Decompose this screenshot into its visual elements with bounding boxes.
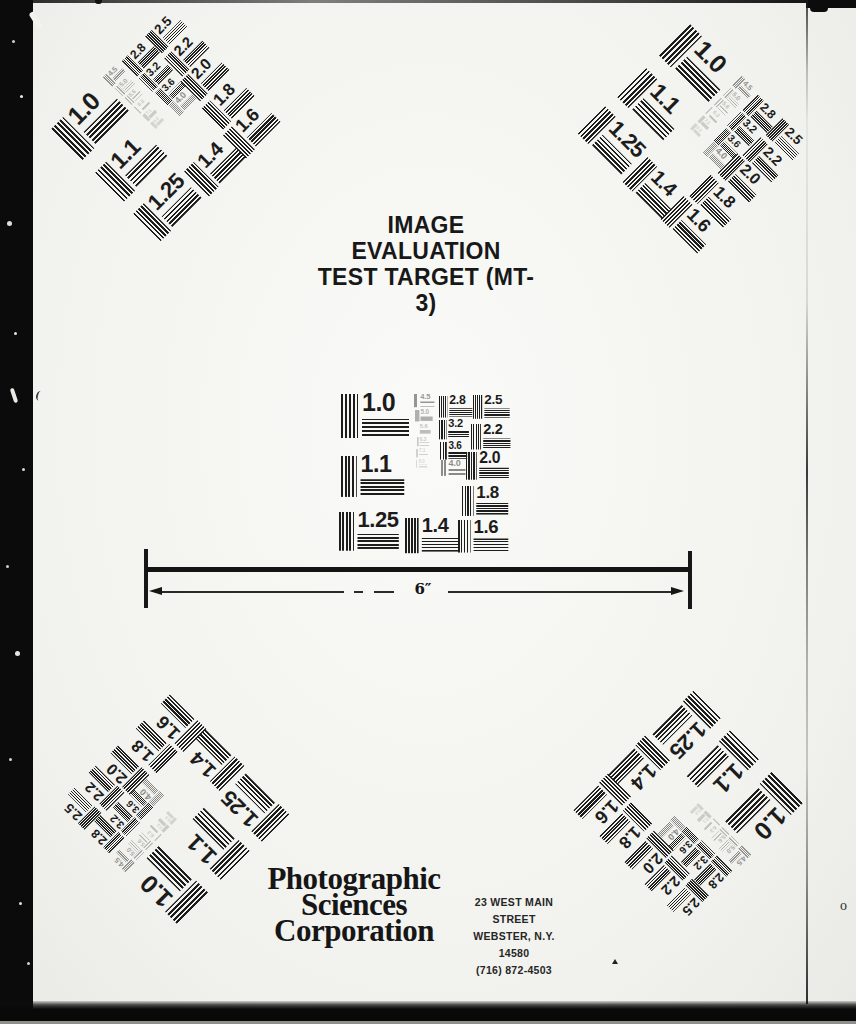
- resolution-number: 4.0: [449, 459, 461, 468]
- company-line-3: Corporation: [252, 918, 456, 944]
- resolution-number: 8.0: [419, 459, 425, 464]
- horizontal-bars: [484, 409, 509, 418]
- resolution-number: 4.5: [420, 393, 430, 401]
- horizontal-bars: [419, 465, 427, 468]
- title-line-2: TEST TARGET (MT-3): [310, 264, 542, 316]
- address-line-2: WEBSTER, N.Y. 14580: [458, 928, 570, 962]
- test-target-top-right: 1.01.11.251.41.61.82.02.22.52.83.23.64.0…: [583, 19, 811, 247]
- vertical-bars: [415, 460, 418, 468]
- horizontal-bars: [448, 431, 469, 438]
- resolution-number: 5.0: [420, 409, 429, 416]
- vertical-bars: [339, 512, 354, 551]
- resolution-number: 6.3: [419, 436, 426, 441]
- resolution-cell-1.8: 1.8: [462, 486, 508, 516]
- ruler-length-label: 6″: [402, 580, 444, 598]
- page-title: IMAGE EVALUATION TEST TARGET (MT-3): [310, 212, 542, 316]
- ruler-tick-right: [688, 551, 692, 609]
- resolution-cell-2.2: 2.2: [471, 424, 510, 450]
- horizontal-bars: [420, 402, 434, 407]
- ink-speck: [95, 0, 102, 4]
- resolution-number: 7.1: [419, 448, 425, 453]
- resolution-number: 1.25: [357, 508, 398, 530]
- vertical-bars: [458, 520, 471, 553]
- resolution-cell-2.0: 2.0: [466, 452, 509, 480]
- film-edge-top: [28, 0, 856, 3]
- horizontal-bars: [420, 417, 432, 421]
- resolution-number: 2.0: [479, 449, 500, 465]
- ruler-arrowhead-right: [671, 587, 684, 595]
- resolution-number: 1.8: [476, 483, 499, 500]
- horizontal-bars: [362, 419, 409, 436]
- vertical-bars: [415, 424, 419, 434]
- ruler-arrow-line-left: [162, 591, 344, 593]
- resolution-cell-4.0: 4.0: [441, 460, 465, 476]
- ruler-arrow-dash: [354, 591, 363, 593]
- resolution-cell-3.2: 3.2: [439, 420, 469, 439]
- company-name: Photographic Sciences Corporation: [252, 866, 456, 944]
- resolution-cell-1.6: 1.6: [458, 520, 508, 553]
- ink-speck: [35, 390, 45, 402]
- ruler-arrowhead-left: [149, 587, 162, 595]
- address-line-3: (716) 872-4503: [458, 962, 570, 979]
- resolution-cell-1.0: 1.0: [341, 394, 409, 438]
- resolution-number: 3.2: [448, 418, 463, 429]
- horizontal-bars: [422, 538, 460, 552]
- resolution-cell-5.0: 5.0: [415, 410, 433, 421]
- ink-speck: [612, 959, 618, 964]
- resolution-number: 3.6: [448, 440, 461, 450]
- horizontal-bars: [361, 479, 405, 495]
- horizontal-bars: [449, 469, 466, 475]
- film-edge-bottom: [0, 1001, 856, 1021]
- resolution-number: 5.6: [420, 423, 428, 429]
- page-crease-line: [806, 0, 808, 1004]
- address-line-1: 23 WEST MAIN STREET: [458, 894, 570, 928]
- vertical-bars: [473, 395, 482, 419]
- ruler-main-line: [146, 567, 690, 572]
- vertical-bars: [462, 486, 474, 516]
- resolution-cell-6.3: 6.3: [415, 437, 429, 446]
- vertical-bars: [405, 518, 419, 553]
- vertical-bars: [439, 396, 447, 418]
- ruler-tick-left: [144, 549, 148, 608]
- horizontal-bars: [449, 408, 472, 416]
- resolution-number: 1.1: [361, 452, 392, 475]
- vertical-bars: [341, 456, 357, 497]
- resolution-cell-5.6: 5.6: [415, 424, 431, 434]
- title-line-1: IMAGE EVALUATION: [310, 212, 542, 264]
- test-target-center: 1.01.11.251.41.61.82.02.22.52.83.23.64.0…: [338, 390, 508, 542]
- horizontal-bars: [474, 539, 509, 552]
- ruler-arrow-dash: [374, 591, 394, 593]
- horizontal-bars: [420, 430, 431, 434]
- resolution-cell-2.5: 2.5: [473, 395, 510, 419]
- resolution-number: 1.6: [474, 517, 499, 536]
- vertical-bars: [439, 420, 446, 439]
- ruler-arrow-line-right: [448, 591, 672, 593]
- company-address: 23 WEST MAIN STREET WEBSTER, N.Y. 14580 …: [458, 894, 570, 979]
- horizontal-bars: [479, 468, 509, 479]
- vertical-bars: [341, 394, 358, 438]
- horizontal-bars: [483, 439, 510, 449]
- test-target-bottom-right: 1.01.11.251.41.61.82.02.22.52.83.23.64.0…: [580, 696, 808, 924]
- resolution-cell-8.0: 8.0: [415, 460, 427, 468]
- resolution-cell-2.8: 2.8: [439, 396, 472, 418]
- test-target-top-left: 1.01.11.251.41.61.82.02.22.52.83.23.64.0…: [46, 8, 274, 236]
- resolution-cell-4.5: 4.5: [414, 394, 434, 407]
- film-edge-top-right-blob: [810, 0, 828, 12]
- resolution-number: 1.4: [422, 515, 449, 535]
- resolution-number: 1.0: [362, 390, 395, 415]
- vertical-bars: [414, 394, 419, 407]
- horizontal-bars: [419, 454, 428, 457]
- scanned-test-target-page: IMAGE EVALUATION TEST TARGET (MT-3) 1.01…: [0, 0, 856, 1024]
- film-edge-left: [0, 0, 33, 1024]
- horizontal-bars: [419, 442, 429, 446]
- vertical-bars: [415, 410, 419, 421]
- resolution-number: 2.5: [484, 393, 502, 407]
- vertical-bars: [441, 460, 447, 476]
- resolution-number: 2.2: [483, 422, 502, 437]
- test-target-bottom-left: 1.01.11.251.41.61.82.02.22.52.83.23.64.0…: [56, 701, 284, 929]
- resolution-cell-1.1: 1.1: [341, 456, 404, 497]
- horizontal-bars: [357, 534, 398, 549]
- stray-mark: o: [840, 898, 847, 914]
- film-speckles: [0, 0, 3, 3]
- resolution-cell-1.4: 1.4: [405, 518, 459, 553]
- vertical-bars: [440, 442, 447, 460]
- resolution-cell-1.25: 1.25: [339, 512, 399, 551]
- resolution-cell-7.1: 7.1: [415, 449, 428, 457]
- vertical-bars: [466, 452, 477, 480]
- vertical-bars: [415, 437, 419, 446]
- horizontal-bars: [476, 503, 508, 515]
- vertical-bars: [415, 449, 418, 457]
- vertical-bars: [471, 424, 481, 450]
- resolution-number: 2.8: [449, 394, 465, 406]
